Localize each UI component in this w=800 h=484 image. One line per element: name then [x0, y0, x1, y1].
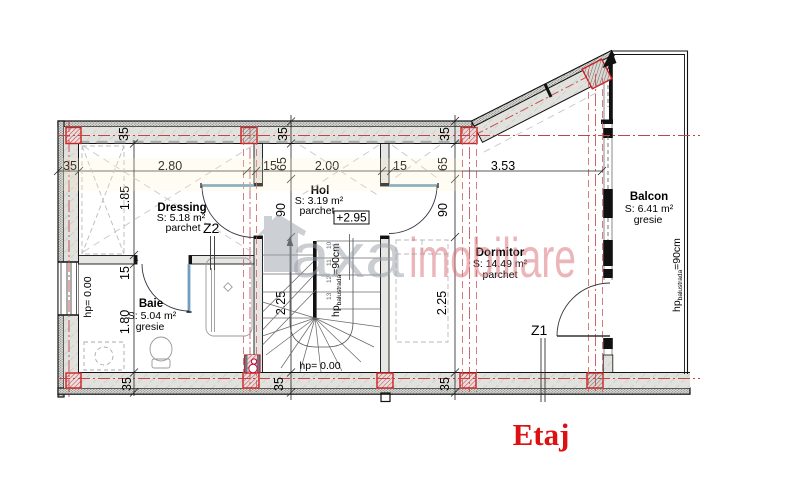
svg-text:hp= 0.00: hp= 0.00: [82, 276, 94, 317]
svg-text:90: 90: [436, 203, 450, 217]
svg-text:gresie: gresie: [634, 214, 663, 226]
svg-text:35: 35: [438, 377, 452, 391]
svg-text:hp= 0.00: hp= 0.00: [299, 360, 340, 372]
svg-text:35: 35: [272, 377, 286, 391]
svg-text:parchet: parchet: [299, 205, 334, 217]
svg-text:13: 13: [326, 292, 333, 300]
svg-text:Balcon: Balcon: [630, 191, 668, 203]
svg-text:Baie: Baie: [139, 298, 163, 310]
svg-text:gresie: gresie: [136, 321, 165, 333]
svg-text:imobiliare: imobiliare: [409, 226, 576, 289]
svg-text:35: 35: [438, 127, 452, 141]
svg-text:35: 35: [120, 377, 134, 391]
svg-text:Z2: Z2: [203, 220, 220, 236]
svg-text:35: 35: [117, 127, 131, 141]
svg-text:35: 35: [276, 127, 290, 141]
svg-text:Etaj: Etaj: [513, 417, 570, 452]
svg-text:90: 90: [274, 203, 288, 217]
svg-text:15: 15: [118, 266, 132, 280]
svg-text:axa: axa: [291, 222, 405, 291]
svg-text:2.25: 2.25: [274, 291, 288, 315]
svg-text:2.25: 2.25: [435, 291, 449, 315]
svg-text:3.53: 3.53: [491, 159, 515, 173]
svg-text:parchet: parchet: [165, 222, 200, 234]
svg-text:Z1: Z1: [531, 322, 548, 338]
